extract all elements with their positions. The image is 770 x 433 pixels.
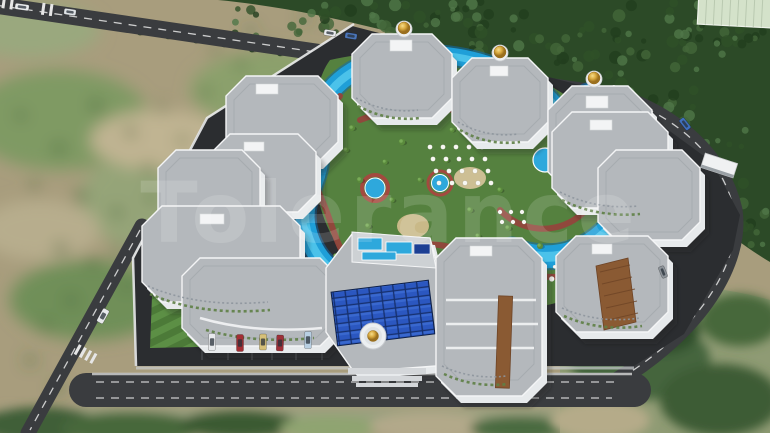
car [237, 335, 244, 352]
dome-skylight [360, 323, 386, 349]
entrance-steps [348, 368, 426, 387]
car [208, 333, 216, 350]
gold-dome [588, 72, 600, 84]
car [276, 335, 284, 351]
aerial-render: Tolerance [0, 0, 770, 433]
greenhouse [697, 0, 770, 28]
wood-accent [495, 296, 512, 388]
gold-dome [398, 22, 410, 34]
car [304, 331, 311, 348]
gold-dome [494, 46, 506, 58]
building-south-east [436, 238, 551, 408]
car [259, 334, 266, 350]
scene-svg: Tolerance [0, 0, 770, 433]
watermark: Tolerance [140, 164, 639, 262]
